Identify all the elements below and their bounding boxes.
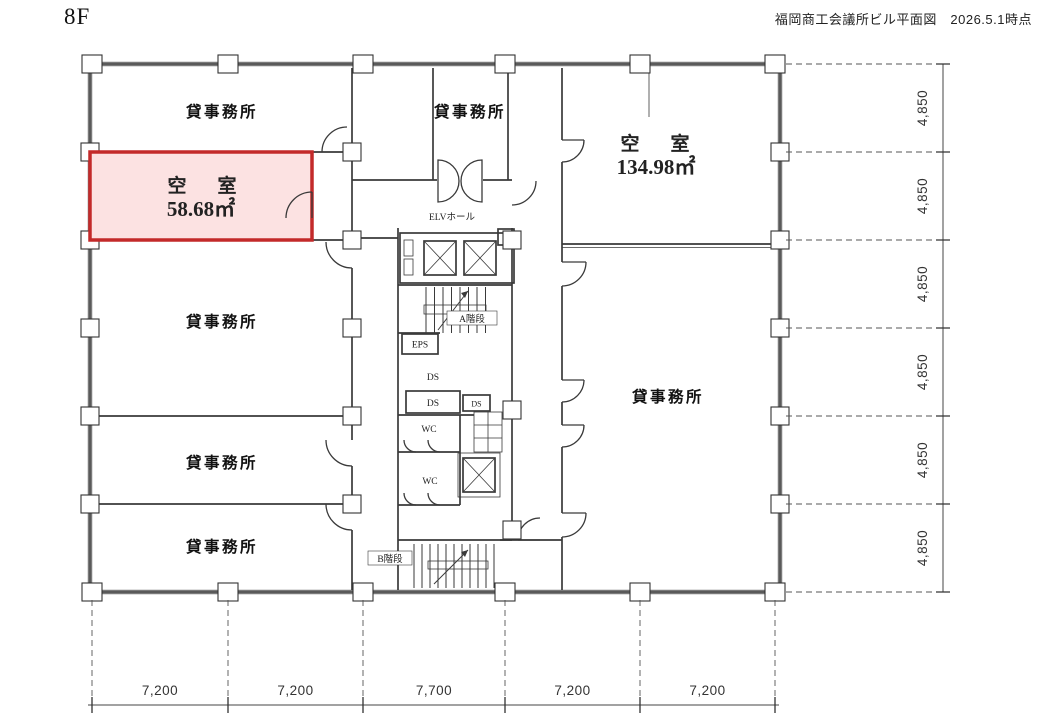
ds-label-3: DS: [471, 400, 481, 409]
dim-right-3: 4,850: [915, 266, 930, 302]
dim-bottom-5: 7,200: [689, 683, 725, 698]
vacant-small-name: 空 室: [167, 174, 242, 197]
stair-a-label: A階段: [459, 313, 485, 325]
office-label-lower-left: 貸事務所: [185, 453, 258, 472]
ds-label-1: DS: [427, 373, 439, 383]
office-label-right: 貸事務所: [631, 387, 704, 406]
dim-right-4: 4,850: [915, 354, 930, 390]
floor-plan-drawing: 貸事務所 貸事務所 貸事務所 貸事務所 貸事務所 貸事務所 空 室 58.68㎡…: [0, 0, 1040, 720]
dim-right-5: 4,850: [915, 442, 930, 478]
stair-b-label: B階段: [377, 553, 403, 565]
dim-right-1: 4,850: [915, 90, 930, 126]
vacant-large-name: 空 室: [620, 132, 695, 155]
vacant-large-area: 134.98㎡: [617, 155, 696, 179]
office-label-top-left: 貸事務所: [185, 102, 258, 121]
office-label-mid-left: 貸事務所: [185, 312, 258, 331]
dim-bottom-3: 7,700: [416, 683, 452, 698]
office-label-top-middle: 貸事務所: [433, 102, 506, 121]
ds-label-2: DS: [427, 399, 439, 409]
eps-label: EPS: [412, 341, 428, 351]
dimension-chain-bottom: 7,200 7,200 7,700 7,200 7,200: [88, 600, 779, 713]
dim-bottom-1: 7,200: [142, 683, 178, 698]
dimension-chain-right: 4,850 4,850 4,850 4,850 4,850 4,850: [786, 64, 950, 592]
office-label-bottom-left: 貸事務所: [185, 537, 258, 556]
dim-bottom-4: 7,200: [554, 683, 590, 698]
drawing-title: 福岡商工会議所ビル平面図 2026.5.1時点: [775, 9, 1032, 28]
floor-number-label: 8F: [64, 4, 90, 30]
dim-right-6: 4,850: [915, 530, 930, 566]
wc-label-1: WC: [421, 425, 436, 435]
wc-label-2: WC: [422, 477, 437, 487]
vacant-small-area: 58.68㎡: [167, 197, 235, 221]
dim-right-2: 4,850: [915, 178, 930, 214]
dim-bottom-2: 7,200: [277, 683, 313, 698]
floor-plan-page: 8F 福岡商工会議所ビル平面図 2026.5.1時点: [0, 0, 1040, 720]
elv-hall-label: ELVホール: [429, 212, 476, 223]
